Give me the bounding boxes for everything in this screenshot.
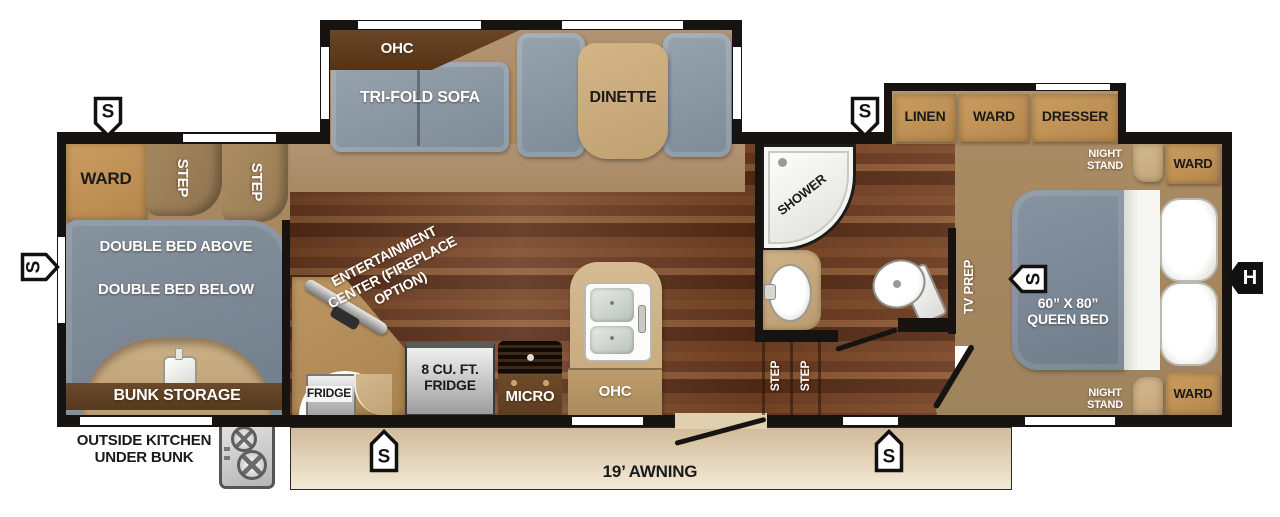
toilet-drain-dot: [893, 280, 901, 288]
hitch-marker: H: [1226, 261, 1264, 295]
bunk-step-upper-label: STEP: [152, 148, 212, 208]
queen-bed-sheet: [1124, 190, 1160, 370]
speaker-marker-bedroom: S: [1008, 264, 1048, 294]
speaker-marker-left-side: S: [20, 252, 60, 282]
night-stand-rear-label: NIGHT STAND: [1076, 385, 1134, 413]
bath-bottom-left-wall: [755, 330, 838, 342]
queen-bed-label: 60” X 80” QUEEN BED: [1012, 292, 1124, 332]
bunk-ward-label: WARD: [66, 168, 146, 190]
window-bottom-bunk: [80, 417, 212, 425]
rv-floorplan: 19’ AWNING OHC TRI-FOLD SOFA DINETTE WAR…: [0, 0, 1280, 517]
night-stand-front: [1133, 144, 1163, 182]
window-front-slide-left: [321, 47, 329, 119]
svg-text:S: S: [378, 447, 391, 468]
hall-step-rear-label: STEP: [778, 348, 834, 404]
bed-slide-right-wall: [1118, 83, 1126, 144]
speaker-marker-top-bath: S: [850, 96, 880, 138]
window-bottom-kitchen: [572, 417, 643, 425]
dinette-bench-left: [517, 33, 585, 157]
bedroom-ward-front-label: WARD: [1166, 155, 1220, 173]
outside-kitchen-label-line1: OUTSIDE KITCHEN: [60, 432, 228, 450]
microwave-dot: [527, 354, 534, 361]
sofa-cushion-seam: [417, 70, 420, 146]
night-stand-rear: [1133, 377, 1163, 415]
svg-text:S: S: [859, 102, 872, 123]
window-front-slide-right: [733, 47, 741, 119]
microwave-knobs: [506, 378, 554, 388]
kitchen-ohc-label: OHC: [568, 383, 662, 401]
window-front-slide-top-1: [358, 21, 481, 29]
bunk-divider-wall: [282, 220, 290, 415]
bunk-bed-below-label: DOUBLE BED BELOW: [76, 281, 276, 299]
tri-fold-sofa-label: TRI-FOLD SOFA: [340, 88, 500, 108]
tv-prep-wall: [948, 228, 956, 334]
bath-faucet-icon: [764, 284, 776, 300]
window-bed-slide-top: [1036, 84, 1110, 90]
bottom-wall-right: [767, 415, 1232, 427]
queen-bed-pillow-bottom: [1160, 282, 1218, 366]
awning-label: 19’ AWNING: [550, 462, 750, 482]
fridge-8cuft-label: 8 CU. FT. FRIDGE: [405, 358, 495, 398]
top-wall-right: [1126, 132, 1232, 144]
linen-label: LINEN: [894, 108, 956, 126]
bath-left-wall: [755, 144, 763, 342]
svg-text:S: S: [883, 447, 896, 468]
tv-prep-label: TV PREP: [961, 247, 977, 327]
kitchen-sink-drains: [608, 300, 616, 342]
dresser-label: DRESSER: [1032, 108, 1118, 126]
dinette-label: DINETTE: [578, 88, 668, 108]
window-bottom-bedroom: [1025, 417, 1115, 425]
window-front-slide-top-2: [562, 21, 683, 29]
window-top-left: [183, 134, 276, 142]
outside-kitchen-faucet-icon: [175, 348, 183, 360]
microwave-label: MICRO: [498, 388, 562, 406]
bunk-step-lower-label: STEP: [226, 152, 286, 212]
bunk-bed-above-label: DOUBLE BED ABOVE: [76, 238, 276, 256]
window-bottom-hall: [843, 417, 898, 425]
shower-drain-dot: [778, 158, 787, 167]
outside-kitchen-label-line2: UNDER BUNK: [60, 449, 228, 467]
svg-text:S: S: [1024, 273, 1045, 286]
outside-fridge-label: FRIDGE: [306, 386, 352, 402]
speaker-marker-top-left: S: [93, 96, 123, 138]
queen-bed-pillow-top: [1160, 198, 1218, 282]
speaker-marker-bottom-kitchen: S: [369, 429, 399, 473]
front-slide-ohc-label: OHC: [352, 38, 442, 60]
bed-slide-left-wall: [884, 83, 892, 144]
slide-ward-label: WARD: [959, 108, 1029, 126]
dinette-bench-right: [663, 33, 731, 157]
bedroom-ward-rear-label: WARD: [1166, 385, 1220, 403]
cooktop-burner-large: [237, 450, 267, 480]
svg-text:S: S: [102, 102, 115, 123]
cooktop-burner-small: [231, 426, 257, 452]
bunk-storage-label: BUNK STORAGE: [66, 387, 288, 405]
speaker-marker-bottom-hall: S: [874, 429, 904, 473]
svg-text:H: H: [1243, 267, 1257, 289]
kitchen-faucet-icon: [638, 305, 646, 333]
svg-text:S: S: [24, 261, 45, 274]
night-stand-front-label: NIGHT STAND: [1076, 146, 1134, 174]
